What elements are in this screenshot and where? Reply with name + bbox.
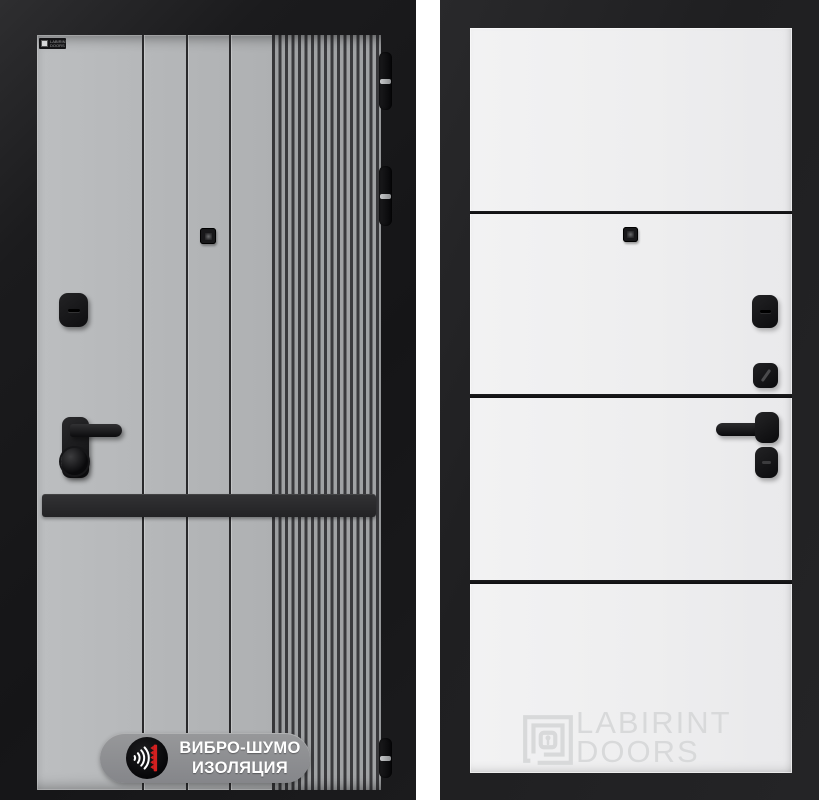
hinge-pin (380, 79, 391, 84)
decor-band (42, 494, 376, 517)
brand-plate-logo-icon (41, 40, 48, 47)
panel-groove (186, 35, 188, 790)
keyhole-slot (762, 461, 771, 464)
thumbturn-slot (760, 369, 770, 382)
watermark-line-2: DOORS (576, 737, 732, 766)
door-exterior-panel: LABIRINT DOORS (0, 0, 416, 800)
door-interior-leaf: LABIRINT DOORS (470, 28, 792, 773)
door-emblem (623, 227, 638, 242)
thumbturn-knob (753, 363, 778, 388)
keyhole-slot (760, 310, 771, 313)
watermark-line-1: LABIRINT (576, 708, 732, 737)
sound-wave-icon (126, 737, 168, 779)
hinge-pin (380, 194, 391, 199)
lock-knob (61, 448, 88, 475)
labyrinth-logo-icon (520, 712, 576, 768)
horizontal-stripe (470, 580, 792, 584)
badge-line-2: ИЗОЛЯЦИЯ (192, 758, 288, 778)
door-handle-lever (70, 424, 122, 437)
cylinder-escutcheon (59, 293, 88, 327)
lower-escutcheon (755, 447, 778, 478)
product-image: LABIRINT DOORS (0, 0, 819, 800)
door-hinge (379, 166, 392, 226)
cylinder-escutcheon (752, 295, 778, 328)
horizontal-stripe (470, 394, 792, 398)
horizontal-stripe (470, 211, 792, 214)
brand-plate-label: LABIRINT DOORS (50, 40, 66, 48)
badge-line-1: ВИБРО-ШУМО (179, 738, 300, 758)
door-hinge (379, 738, 392, 778)
brand-plate: LABIRINT DOORS (39, 38, 66, 49)
door-emblem (200, 228, 216, 244)
door-interior-panel: LABIRINT DOORS (440, 0, 819, 800)
brand-watermark: LABIRINT DOORS (470, 708, 792, 773)
handle-rosette (755, 412, 779, 443)
brand-watermark-text: LABIRINT DOORS (576, 708, 732, 766)
door-exterior-leaf: LABIRINT DOORS (37, 35, 381, 790)
panel-groove (142, 35, 144, 790)
fluted-texture (272, 35, 381, 790)
noise-isolation-label: ВИБРО-ШУМО ИЗОЛЯЦИЯ (178, 733, 302, 783)
noise-isolation-badge: ВИБРО-ШУМО ИЗОЛЯЦИЯ (100, 733, 310, 783)
keyhole-slot (68, 309, 80, 312)
panel-groove (229, 35, 231, 790)
hinge-pin (380, 756, 391, 761)
door-hinge (379, 52, 392, 110)
